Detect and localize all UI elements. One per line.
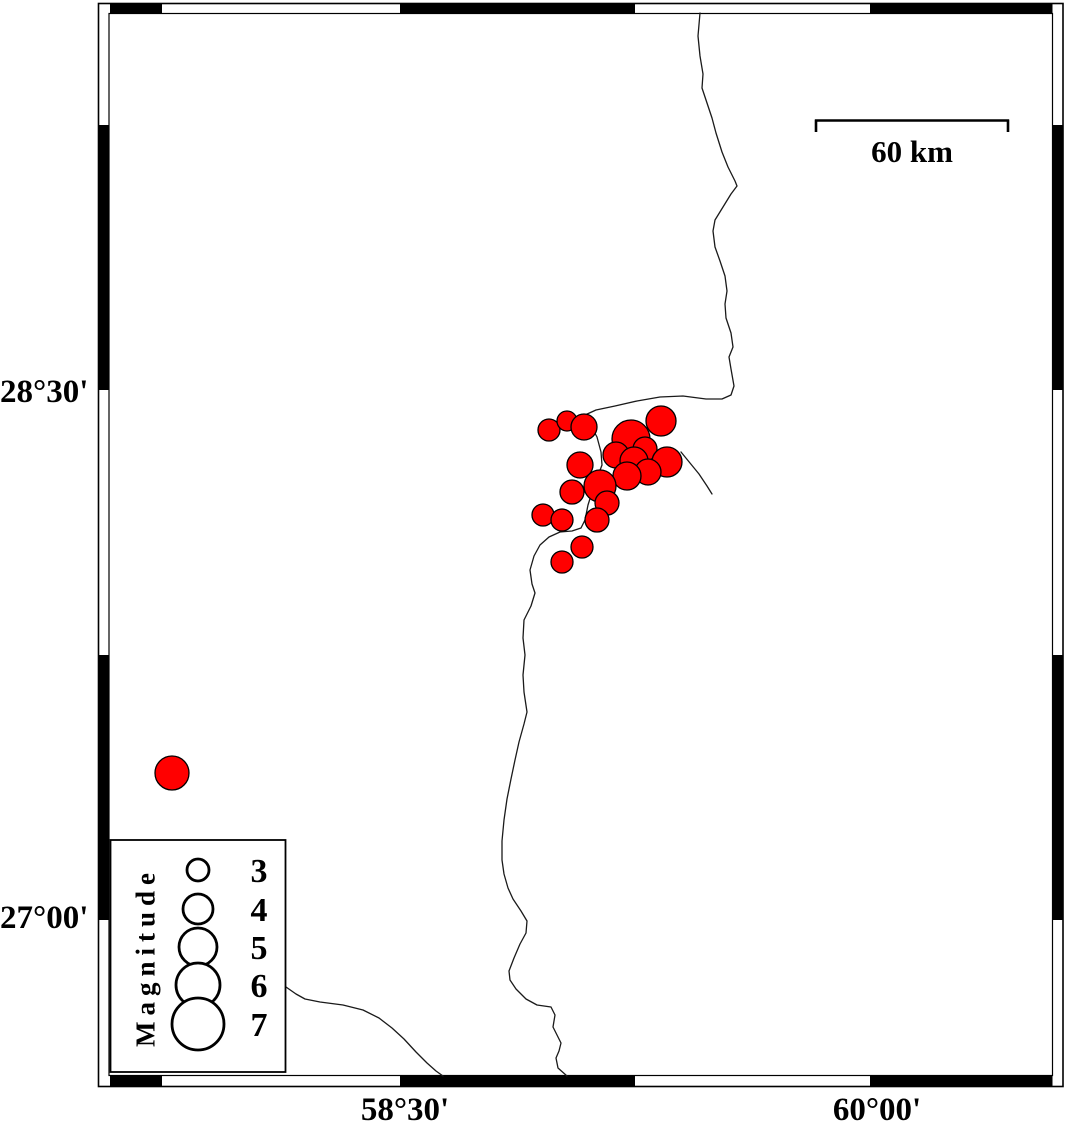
legend-title: Magnitude — [131, 867, 162, 1047]
frame-tick-segment-bottom — [870, 1076, 1053, 1087]
frame-tick-segment-top — [400, 4, 635, 14]
legend-label-mag-3: 3 — [251, 853, 268, 890]
earthquake-marker — [551, 551, 573, 573]
lat-label-28-30: 28°30' — [0, 371, 86, 413]
frame-tick-segment-right — [1053, 655, 1064, 920]
seismicity-map: 34567 28°30' 27°00' 58°30' 60°00' 60 km … — [0, 0, 1066, 1125]
frame-tick-segment-top — [110, 4, 162, 14]
legend-circle-mag-5 — [179, 928, 217, 966]
legend-label-mag-6: 6 — [251, 968, 268, 1005]
lon-label-58-30: 58°30' — [325, 1089, 485, 1125]
coastline-stub — [681, 452, 712, 494]
earthquake-marker — [585, 508, 609, 532]
coastline-branch — [286, 987, 443, 1076]
legend-circle-mag-3 — [187, 859, 209, 881]
legend-label-mag-7: 7 — [251, 1007, 268, 1044]
legend-label-mag-5: 5 — [251, 930, 268, 967]
scale-bar-label: 60 km — [832, 132, 992, 172]
frame-tick-segment-top — [870, 4, 1053, 14]
earthquake-layer — [155, 406, 682, 790]
scale-bar — [815, 120, 1009, 133]
earthquake-marker — [571, 414, 597, 440]
earthquake-marker — [560, 480, 584, 504]
coastline-layer — [286, 13, 737, 1076]
earthquake-marker — [646, 406, 676, 436]
frame-tick-segment-left — [99, 125, 110, 390]
lat-label-27-00: 27°00' — [0, 897, 86, 939]
legend-label-mag-4: 4 — [251, 892, 268, 929]
frame-tick-segment-bottom — [110, 1076, 162, 1087]
lon-label-60-00: 60°00' — [797, 1089, 957, 1125]
frame-tick-segment-right — [1053, 125, 1064, 390]
earthquake-marker — [155, 756, 189, 790]
legend-circle-mag-7 — [172, 998, 224, 1050]
frame-tick-segment-bottom — [400, 1076, 635, 1087]
frame-tick-segment-left — [99, 655, 110, 920]
earthquake-marker — [613, 462, 641, 490]
coastline-main — [502, 13, 737, 1076]
earthquake-marker — [551, 509, 573, 531]
legend-circle-mag-4 — [183, 894, 213, 924]
earthquake-marker — [571, 536, 593, 558]
